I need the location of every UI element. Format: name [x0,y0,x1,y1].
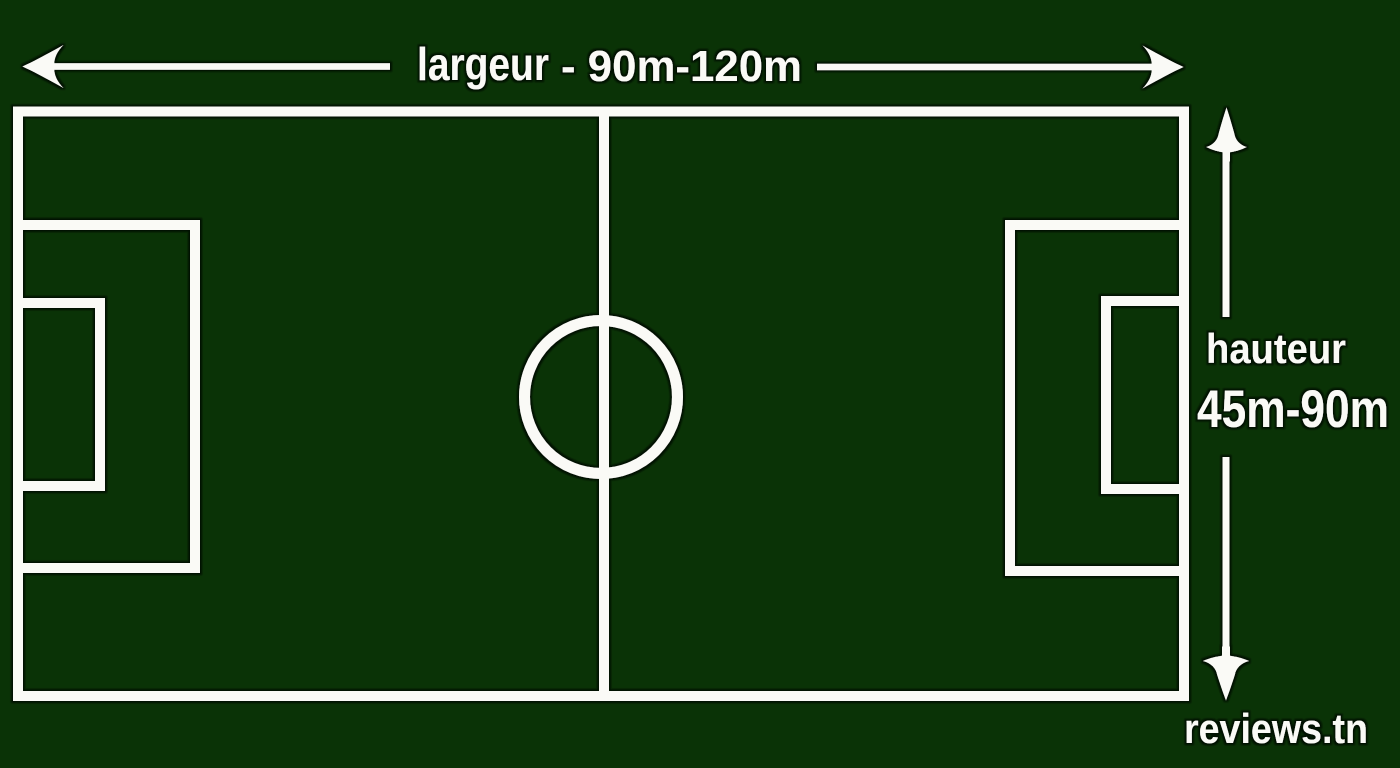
svg-text:- 90m-120m: - 90m-120m [561,42,802,91]
svg-text:reviews.tn: reviews.tn [1184,705,1368,752]
svg-text:largeur: largeur [417,38,549,90]
svg-text:hauteur: hauteur [1206,325,1346,372]
svg-text:45m-90m: 45m-90m [1197,380,1389,439]
